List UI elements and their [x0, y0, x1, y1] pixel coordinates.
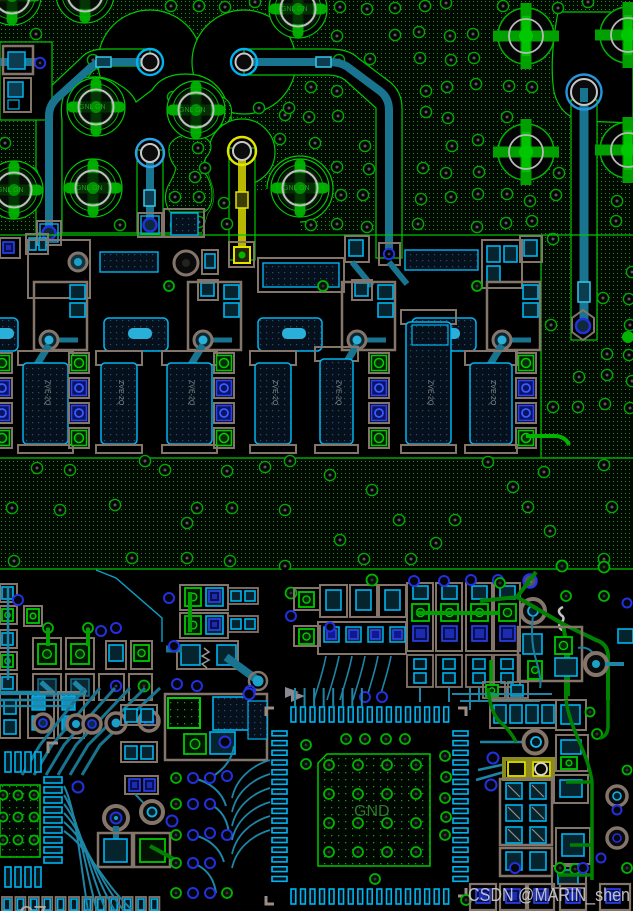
svg-text:ZVE-2Q: ZVE-2Q: [489, 380, 496, 406]
svg-text:CSDN @MARIN_shen: CSDN @MARIN_shen: [468, 884, 630, 906]
svg-text:25: 25: [19, 900, 47, 911]
svg-text:ZVE-2Q: ZVE-2Q: [271, 380, 278, 406]
svg-text:ZVE-2Q: ZVE-2Q: [117, 380, 124, 406]
svg-text:GND: GND: [354, 803, 390, 820]
svg-text:ZVE-2Q: ZVE-2Q: [188, 380, 195, 406]
svg-text:ZVE-2Q: ZVE-2Q: [44, 380, 51, 406]
svg-text:ZVE-2Q: ZVE-2Q: [335, 380, 342, 406]
svg-text:ZVE-2Q: ZVE-2Q: [427, 380, 434, 406]
